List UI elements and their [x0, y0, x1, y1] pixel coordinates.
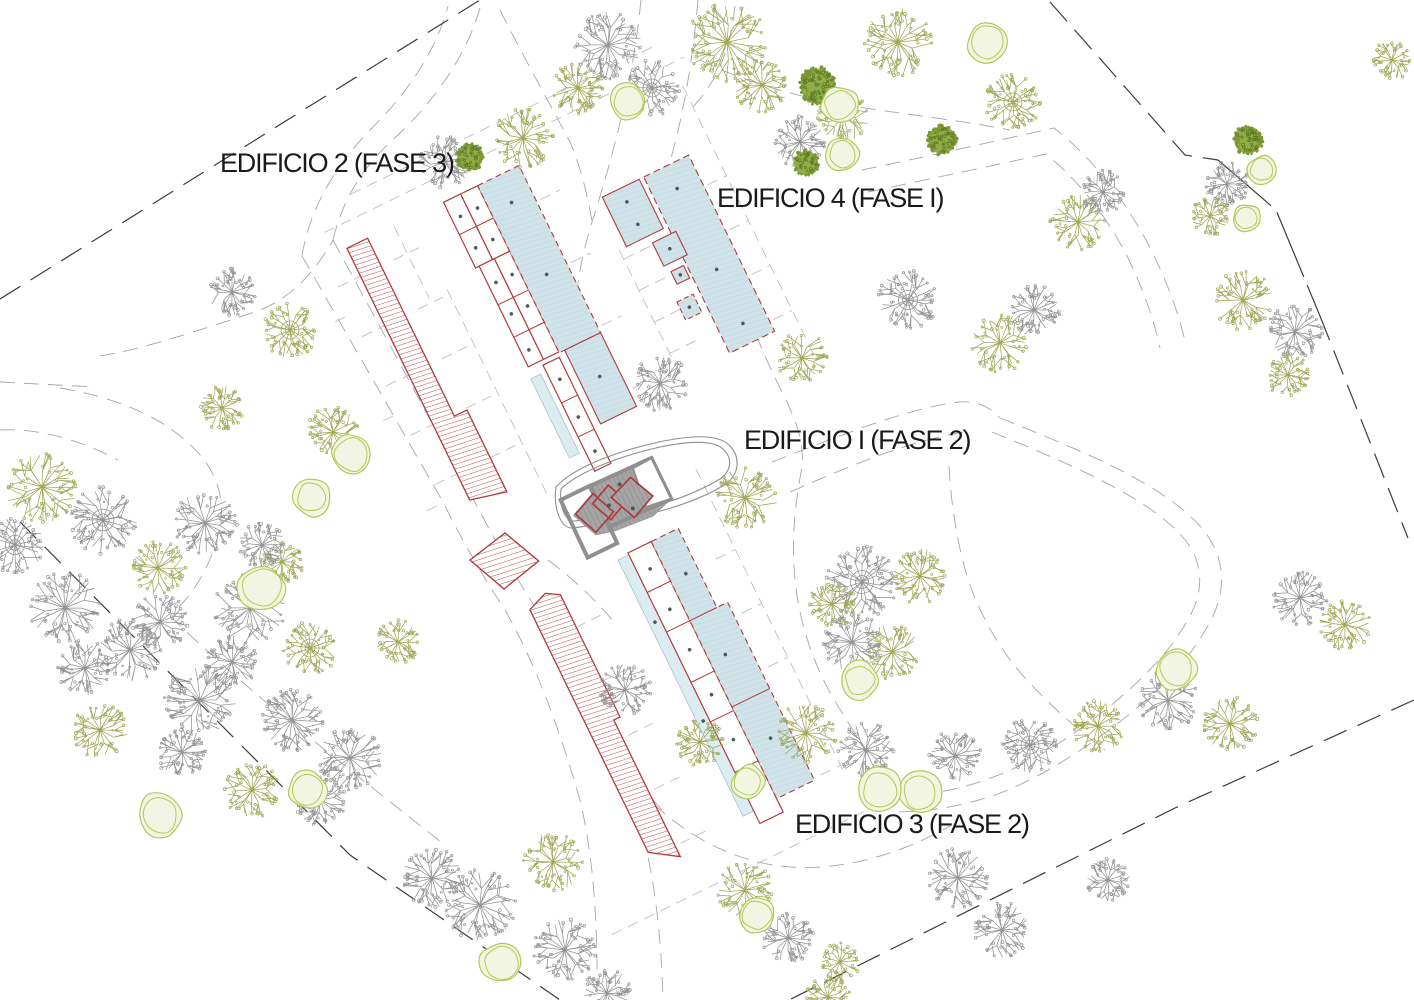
svg-text:EDIFICIO 2 (FASE 3): EDIFICIO 2 (FASE 3) — [220, 148, 454, 178]
svg-text:EDIFICIO I (FASE 2): EDIFICIO I (FASE 2) — [744, 425, 970, 455]
svg-text:EDIFICIO 4 (FASE I): EDIFICIO 4 (FASE I) — [717, 183, 943, 213]
svg-text:EDIFICIO 3 (FASE 2): EDIFICIO 3 (FASE 2) — [795, 809, 1029, 839]
